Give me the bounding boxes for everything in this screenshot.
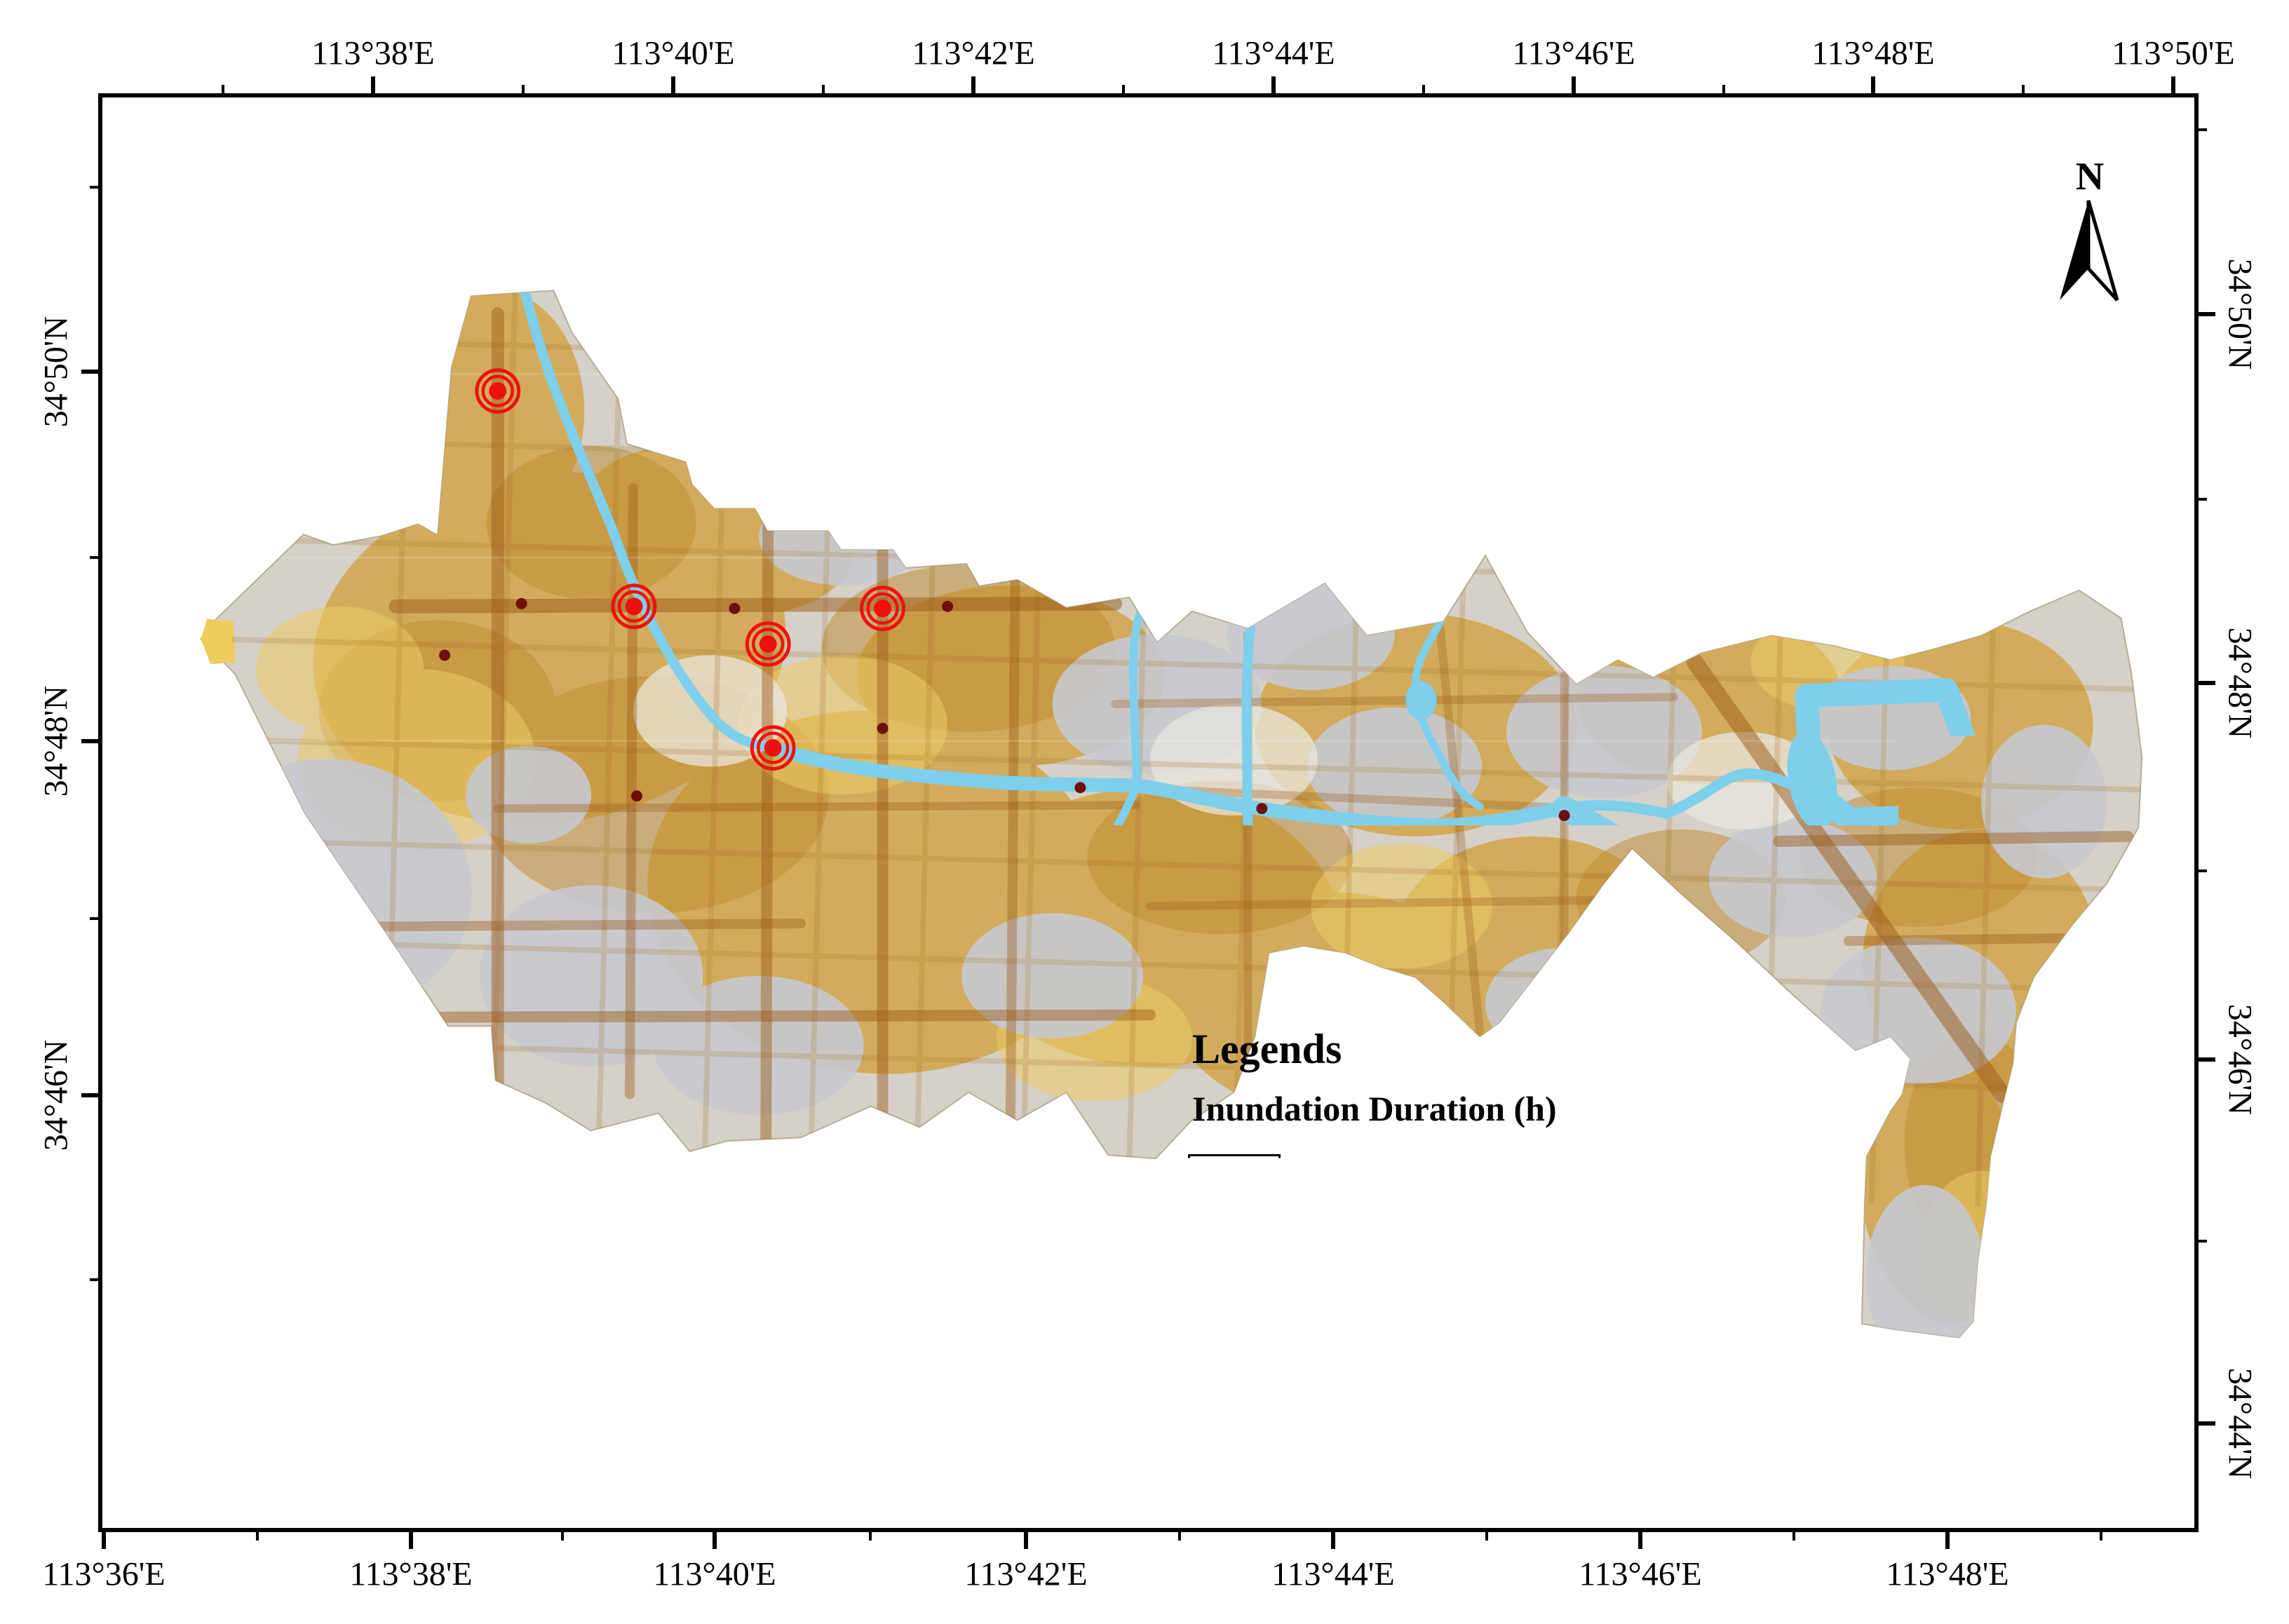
waterlogged-spot-marker: [1928, 820, 1970, 862]
scale-bar-segment: [357, 1337, 456, 1349]
waterlogged-spot-marker: [613, 586, 655, 628]
axis-tick: [90, 556, 98, 559]
axis-tick: [2199, 1421, 2215, 1426]
axis-label-top: 113°46'E: [1512, 34, 1635, 73]
axis-tick: [522, 85, 525, 93]
axis-label-top: 113°50'E: [2112, 34, 2234, 73]
axis-tick: [822, 85, 825, 93]
scale-bar-segment: [456, 1337, 653, 1349]
axis-label-bottom: 113°42'E: [964, 1555, 1087, 1594]
axis-tick: [81, 739, 98, 743]
axis-label-bottom: 113°38'E: [349, 1555, 472, 1594]
axis-tick: [102, 1532, 106, 1549]
axis-label-top: 113°38'E: [311, 34, 434, 73]
axis-tick: [2199, 312, 2215, 316]
axis-tick: [1722, 85, 1725, 93]
scale-bar-number: 2: [448, 1285, 464, 1322]
axis-tick: [1871, 76, 1875, 93]
axis-tick: [2199, 1057, 2215, 1062]
axis-tick: [2199, 1240, 2207, 1243]
scale-bar-number: 4: [648, 1285, 664, 1322]
axis-tick: [81, 370, 98, 374]
lake: [1406, 681, 1437, 720]
west-yellow-patch: [201, 619, 235, 665]
scale-bar-number: 0: [248, 1285, 264, 1322]
axis-label-left: 34°50'N: [37, 316, 76, 428]
north-label: N: [2076, 155, 2104, 198]
axis-tick: [1331, 1532, 1335, 1549]
waterlogged-spot-marker: [1998, 980, 2040, 1022]
axis-tick: [869, 1532, 872, 1541]
axis-tick: [2199, 681, 2215, 685]
axis-tick: [2100, 1532, 2102, 1541]
axis-label-left: 34°46'N: [37, 1040, 76, 1151]
waterlogged-spot-marker: [1980, 1048, 2023, 1090]
axis-label-bottom: 113°48'E: [1886, 1555, 2008, 1594]
axis-tick: [1024, 1532, 1028, 1549]
axis-tick: [1945, 1532, 1950, 1549]
axis-tick: [1178, 1532, 1181, 1541]
axis-tick: [2199, 128, 2207, 131]
waterlogged-spot-marker: [747, 623, 789, 665]
axis-label-bottom: 113°36'E: [42, 1555, 165, 1594]
axis-tick: [1572, 76, 1576, 93]
axis-tick: [371, 76, 375, 93]
scale-bar-bar: [255, 1334, 656, 1352]
axis-label-top: 113°40'E: [612, 34, 734, 73]
axis-tick: [81, 1093, 98, 1097]
axis-tick: [2199, 498, 2207, 501]
axis-label-top: 113°42'E: [912, 34, 1034, 73]
axis-tick: [971, 76, 975, 93]
scale-bar-segment: [258, 1337, 357, 1349]
axis-label-top: 113°44'E: [1212, 34, 1335, 73]
axis-tick: [1122, 85, 1125, 93]
axis-tick: [256, 1532, 259, 1541]
scale-bar: km 0124: [224, 1283, 799, 1381]
north-arrow-icon: N: [2034, 139, 2153, 314]
axis-label-right: 34°50'N: [2221, 259, 2260, 370]
axis-tick: [90, 186, 98, 189]
map-figure: 113°38'E113°40'E113°42'E113°44'E113°46'E…: [0, 0, 2289, 1624]
axis-tick: [409, 1532, 413, 1549]
axis-tick: [2171, 76, 2175, 93]
waterlogged-spot-marker: [1917, 913, 1959, 955]
waterlogged-spot-marker: [1823, 916, 1865, 959]
axis-label-right: 34°44'N: [2221, 1368, 2260, 1480]
scale-bar-number: 1: [348, 1285, 364, 1322]
axis-tick: [2199, 869, 2207, 872]
axis-label-right: 34°46'N: [2221, 1004, 2260, 1116]
waterlogged-spot-marker: [855, 839, 897, 881]
north-arrow-right-half: [2088, 201, 2117, 300]
axis-label-bottom: 113°40'E: [653, 1555, 776, 1594]
axis-tick: [1485, 1532, 1488, 1541]
waterlogged-spot-marker: [752, 727, 794, 769]
axis-tick: [90, 917, 98, 920]
axis-label-bottom: 113°44'E: [1271, 1555, 1394, 1594]
axis-tick: [561, 1532, 564, 1541]
axis-tick: [222, 85, 224, 93]
axis-label-bottom: 113°46'E: [1579, 1555, 1701, 1594]
axis-tick: [1792, 1532, 1795, 1541]
axis-label-right: 34°48'N: [2221, 628, 2260, 739]
axis-tick: [1271, 76, 1276, 93]
axis-tick: [713, 1532, 717, 1549]
axis-tick: [1422, 85, 1425, 93]
axis-label-left: 34°48'N: [37, 686, 76, 797]
waterlogged-spot-marker: [862, 588, 904, 630]
axis-tick: [671, 76, 675, 93]
axis-tick: [2022, 85, 2025, 93]
north-arrow-left-half: [2060, 201, 2088, 300]
axis-tick: [90, 1278, 98, 1281]
waterlogged-spot-marker: [1757, 940, 1800, 982]
scale-bar-unit: km: [684, 1322, 735, 1364]
axis-label-top: 113°48'E: [1811, 34, 1934, 73]
axis-tick: [1638, 1532, 1642, 1549]
waterlogged-spot-marker: [477, 370, 519, 412]
